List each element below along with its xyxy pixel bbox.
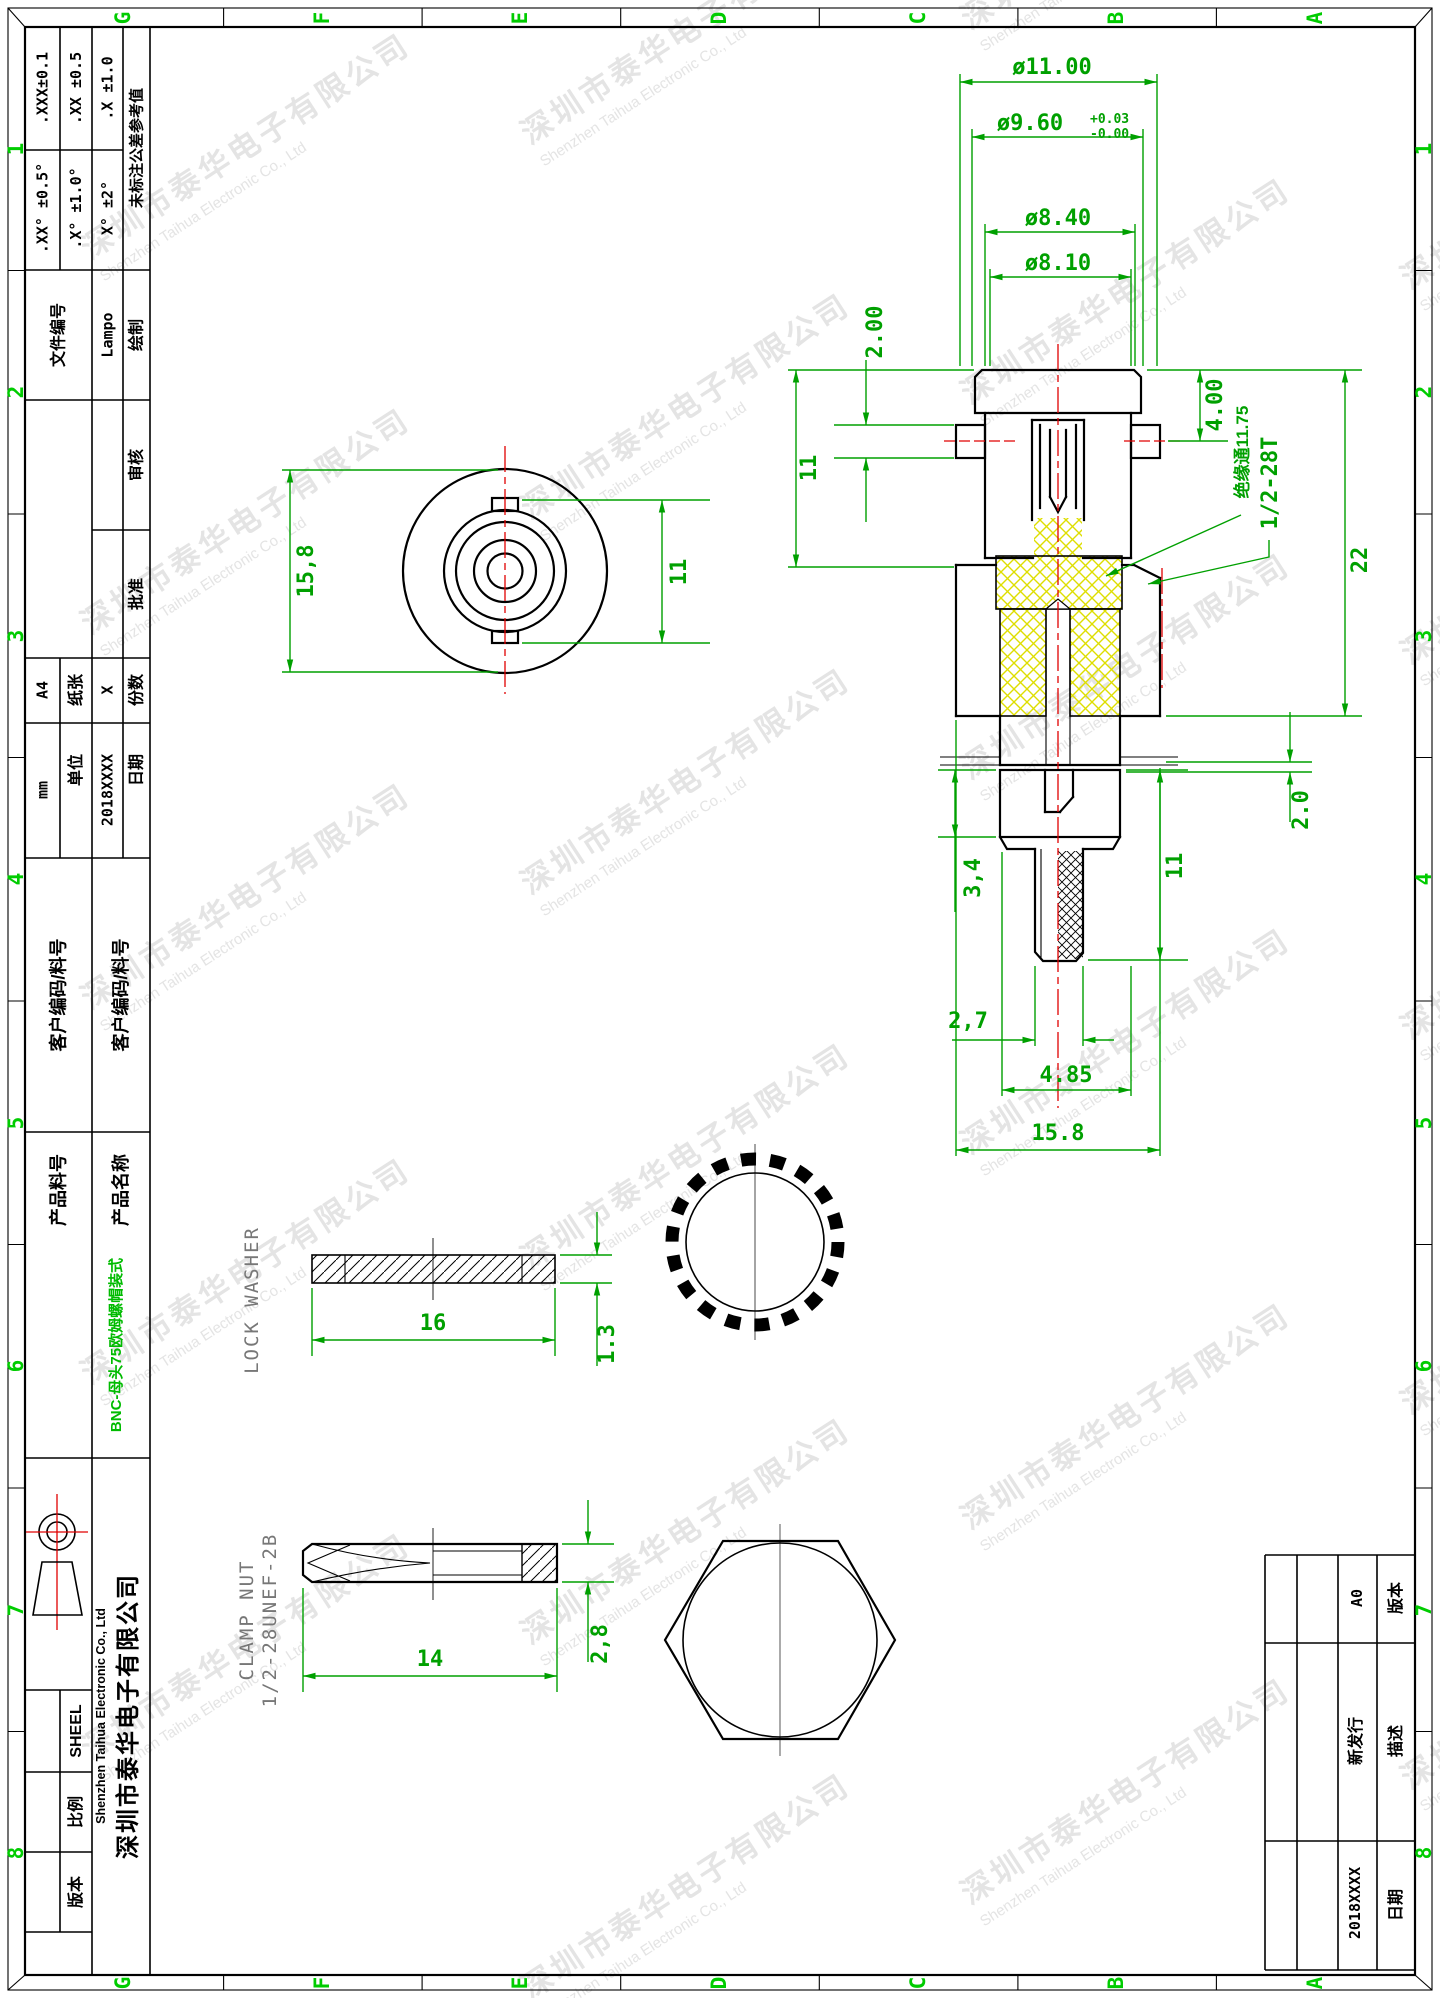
grid-number: 6 bbox=[1412, 1360, 1436, 1373]
grid-number: 5 bbox=[4, 1117, 28, 1130]
engineering-drawing: 深圳市泰华电子有限公司Shenzhen Taihua Electronic Co… bbox=[0, 0, 1440, 1998]
check-label: 审核 bbox=[127, 449, 146, 481]
watermark-cn: 深圳市泰华电子有限公司 bbox=[515, 662, 857, 901]
dim-nut-t: 2,8 bbox=[588, 1624, 613, 1664]
grid-number: 8 bbox=[1412, 1847, 1436, 1860]
company-name-en: Shenzhen Taihua Electronic Co., Ltd bbox=[94, 1608, 108, 1824]
paper-value: A4 bbox=[34, 681, 52, 699]
watermark-cn: 深圳市泰华电子有限公司 bbox=[955, 172, 1297, 411]
grid-letter: A bbox=[1303, 11, 1327, 24]
projection-symbol bbox=[26, 1494, 88, 1630]
product-no-label: 产品料号 bbox=[48, 1154, 69, 1226]
dim-shell-len: 11 bbox=[797, 455, 822, 482]
grid-number: 6 bbox=[4, 1360, 28, 1373]
grid-letter: G bbox=[111, 1977, 135, 1990]
dim-flange: 15.8 bbox=[1032, 1121, 1085, 1146]
unit-label: 单位 bbox=[66, 754, 85, 786]
rev-version-label: 版本 bbox=[1386, 1582, 1405, 1615]
grid-letter: G bbox=[111, 12, 135, 25]
company-name-cn: 深圳市泰华电子有限公司 bbox=[114, 1573, 142, 1859]
file-no-label: 文件编号 bbox=[49, 303, 68, 367]
grid-letter: F bbox=[310, 1977, 334, 1990]
sheet-label: SHEEL bbox=[68, 1704, 85, 1758]
dim-dia-outer: ø11.00 bbox=[1012, 55, 1091, 80]
dim-boss: 4.85 bbox=[1040, 1063, 1093, 1088]
grid-number: 3 bbox=[1412, 630, 1436, 643]
knurl-hatch bbox=[1058, 851, 1083, 959]
dim-front-od: 15,8 bbox=[294, 545, 319, 598]
rev-desc-label: 描述 bbox=[1386, 1725, 1405, 1757]
insulator-hatch bbox=[1000, 609, 1046, 716]
grid-number: 8 bbox=[4, 1847, 28, 1860]
dim-dia-840: ø8.40 bbox=[1025, 206, 1091, 231]
scale-label: 比例 bbox=[66, 1796, 85, 1828]
date-value: 2018XXXX bbox=[99, 754, 117, 826]
grid-number: 7 bbox=[4, 1604, 28, 1617]
grid-number: 4 bbox=[1412, 873, 1436, 886]
dim-front-lug: 11 bbox=[667, 559, 692, 586]
dim-stem: 2,7 bbox=[948, 1009, 988, 1034]
grid-letter: C bbox=[906, 12, 930, 25]
version-label-left: 版本 bbox=[66, 1876, 85, 1909]
grid-letter: E bbox=[508, 12, 532, 25]
tolerance-angular-3: .XX° ±0.5° bbox=[34, 163, 52, 253]
grid-number: 1 bbox=[1412, 143, 1436, 156]
rev-desc-value: 新发行 bbox=[1346, 1717, 1365, 1765]
tolerance-linear-3: .XXX±0.1 bbox=[34, 52, 52, 124]
customer-code-label: 客户编码/料号 bbox=[110, 938, 131, 1051]
copies-label: 份数 bbox=[127, 673, 146, 706]
grid-letter: B bbox=[1104, 1977, 1128, 1990]
revision-table: 版本 A0 描述 新发行 日期 2018XXXX bbox=[1265, 1555, 1415, 1970]
customer-code-label-2: 客户编码/料号 bbox=[48, 938, 69, 1051]
dim-nut-w: 14 bbox=[417, 1647, 444, 1672]
rev-version-value: A0 bbox=[1348, 1589, 1366, 1607]
lock-washer-label: LOCK WASHER bbox=[241, 1226, 263, 1374]
dim-slot: 3,4 bbox=[961, 858, 986, 898]
grid-number: 1 bbox=[4, 143, 28, 156]
section-view: ø11.00 ø9.60 +0.03 -0.00 ø8.40 ø8.10 2.0… bbox=[788, 55, 1373, 1156]
watermark-cn: 深圳市泰华电子有限公司 bbox=[955, 1672, 1297, 1911]
watermark-cn: 深圳市泰华电子有限公司 bbox=[955, 922, 1297, 1161]
dim-total: 22 bbox=[1348, 547, 1373, 574]
approve-label: 批准 bbox=[127, 578, 146, 610]
watermark-cn: 深圳市泰华电子有限公司 bbox=[75, 402, 417, 641]
grid-number: 4 bbox=[4, 873, 28, 886]
drawn-label: 绘制 bbox=[127, 319, 146, 351]
paper-label: 纸张 bbox=[66, 673, 85, 706]
dim-tol-plus: +0.03 bbox=[1090, 112, 1129, 127]
dim-tol-minus: -0.00 bbox=[1090, 127, 1129, 142]
product-name-label: 产品名称 bbox=[110, 1154, 131, 1226]
grid-letter: C bbox=[906, 1977, 930, 1990]
dim-thread: 1/2-28T bbox=[1258, 437, 1283, 530]
dim-washer-gap: 2.0 bbox=[1289, 790, 1314, 830]
clamp-nut-label-1: 1/2-28UNEF-2B bbox=[259, 1533, 281, 1708]
insulator-hatch bbox=[1070, 609, 1120, 716]
tolerance-header: 未标注公差参考值 bbox=[128, 88, 146, 209]
watermark-cn: 深圳市泰华电子有限公司 bbox=[75, 27, 417, 266]
grid-letter: D bbox=[707, 12, 731, 25]
tolerance-angular-2: .X° ±1.0° bbox=[67, 167, 85, 248]
grid-letter: E bbox=[508, 1977, 532, 1990]
grid-letter: D bbox=[707, 1977, 731, 1990]
dim-rear-len: 11 bbox=[1163, 853, 1188, 880]
dim-washer-t: 1.3 bbox=[595, 1324, 620, 1364]
grid-number: 2 bbox=[1412, 386, 1436, 399]
grid-letter: A bbox=[1303, 1976, 1327, 1989]
product-name-value: BNC-母头75欧姆螺帽装式 bbox=[107, 1258, 125, 1432]
watermark-cn: 深圳市泰华电子有限公司 bbox=[1395, 807, 1440, 1046]
tolerance-linear-2: .XX ±0.5 bbox=[67, 52, 85, 124]
dim-lug: 4.00 bbox=[1203, 379, 1228, 432]
drawn-value: Lampo bbox=[99, 312, 117, 357]
rev-date-label: 日期 bbox=[1386, 1889, 1405, 1921]
tolerance-linear-1: .X ±1.0 bbox=[99, 56, 117, 119]
grid-letter: B bbox=[1104, 12, 1128, 25]
clamp-nut-label-2: CLAMP NUT bbox=[236, 1560, 258, 1681]
dim-dia-810: ø8.10 bbox=[1025, 251, 1091, 276]
dim-dia-960: ø9.60 bbox=[997, 111, 1063, 136]
watermark-cn: 深圳市泰华电子有限公司 bbox=[1395, 57, 1440, 296]
watermark-cn: 深圳市泰华电子有限公司 bbox=[955, 1297, 1297, 1536]
dim-washer-od: 16 bbox=[420, 1311, 447, 1336]
copies-value: X bbox=[99, 685, 117, 694]
watermark-cn: 深圳市泰华电子有限公司 bbox=[1395, 1182, 1440, 1421]
watermark-cn: 深圳市泰华电子有限公司 bbox=[515, 1767, 857, 1998]
dim-pin: 2.00 bbox=[863, 306, 888, 359]
date-label: 日期 bbox=[127, 754, 146, 786]
grid-letter: F bbox=[310, 12, 334, 25]
grid-number: 7 bbox=[1412, 1604, 1436, 1617]
drawing-sheet: 深圳市泰华电子有限公司Shenzhen Taihua Electronic Co… bbox=[0, 0, 1440, 1998]
grid-number: 2 bbox=[4, 386, 28, 399]
lock-washer-view: 16 1.3 LOCK WASHER bbox=[241, 1144, 838, 1374]
rev-date-value: 2018XXXX bbox=[1346, 1867, 1364, 1939]
grid-number: 3 bbox=[4, 630, 28, 643]
grid-number: 5 bbox=[1412, 1117, 1436, 1130]
unit-value: mm bbox=[34, 781, 52, 799]
tolerance-angular-1: X° ±2° bbox=[99, 181, 117, 235]
dim-insulator: 绝缘通11.75 bbox=[1232, 406, 1252, 499]
front-view: 15,8 11 bbox=[282, 446, 710, 694]
